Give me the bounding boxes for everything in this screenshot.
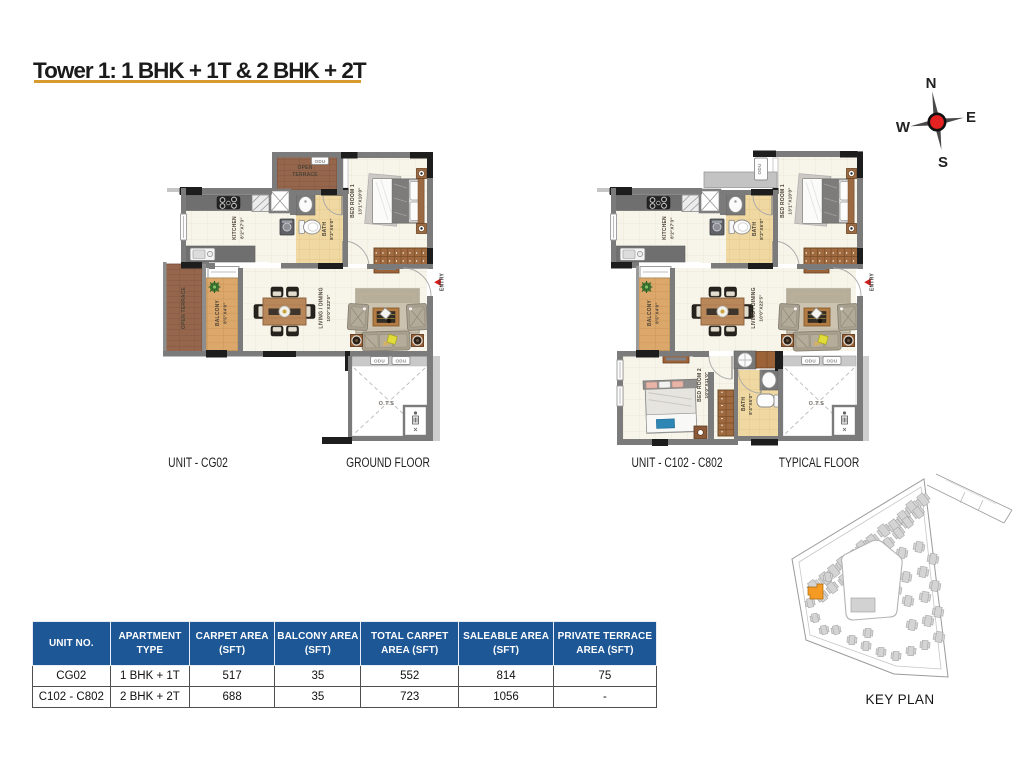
svg-text:LIVING / DINING: LIVING / DINING [319,287,325,328]
svg-text:10'0"X22'5": 10'0"X22'5" [759,294,764,321]
svg-text:W: W [896,119,911,136]
svg-text:8'5"X4'0": 8'5"X4'0" [223,302,228,324]
svg-text:ODU: ODU [395,359,406,364]
svg-text:10'0"X22'5": 10'0"X22'5" [326,294,331,321]
svg-text:BALCONY: BALCONY [647,299,653,326]
svg-text:ODU: ODU [315,159,326,164]
svg-text:ODU: ODU [826,359,837,364]
svg-text:E: E [966,109,976,126]
svg-text:ODU: ODU [757,163,762,174]
svg-text:OPEN TERRACE: OPEN TERRACE [181,286,187,329]
svg-text:OPEN: OPEN [298,165,313,171]
svg-text:ENTRY: ENTRY [440,273,446,292]
svg-text:8'2"X7'3": 8'2"X7'3" [240,217,245,239]
svg-text:ODU: ODU [374,359,385,364]
svg-text:BATH: BATH [322,222,328,237]
svg-text:BATH: BATH [752,222,758,237]
svg-text:KITCHEN: KITCHEN [232,216,238,240]
svg-text:S: S [938,154,948,171]
svg-text:ENTRY: ENTRY [870,273,876,292]
svg-text:N: N [926,75,937,92]
svg-text:BED ROOM 2: BED ROOM 2 [697,368,703,402]
svg-text:LIVING / DINING: LIVING / DINING [751,287,757,328]
svg-text:8'2"X5'0": 8'2"X5'0" [329,218,334,240]
svg-text:ODU: ODU [805,359,816,364]
svg-text:BALCONY: BALCONY [215,299,221,326]
svg-text:8'2"X7'3": 8'2"X7'3" [670,217,675,239]
svg-text:BED ROOM 1: BED ROOM 1 [350,184,356,218]
svg-text:8'4"X5'0": 8'4"X5'0" [748,393,753,415]
svg-text:13'1"X10'0": 13'1"X10'0" [358,187,363,214]
svg-text:8'5"X4'0": 8'5"X4'0" [655,302,660,324]
svg-text:BED ROOM 1: BED ROOM 1 [780,184,786,218]
svg-text:KITCHEN: KITCHEN [662,216,668,240]
svg-text:BATH: BATH [741,397,747,412]
svg-text:O.T.S: O.T.S [809,401,825,407]
svg-text:O.T.S: O.T.S [379,401,395,407]
svg-text:13'1"X10'0": 13'1"X10'0" [788,187,793,214]
svg-text:8'2"X5'0": 8'2"X5'0" [759,218,764,240]
svg-text:TERRACE: TERRACE [292,172,318,178]
